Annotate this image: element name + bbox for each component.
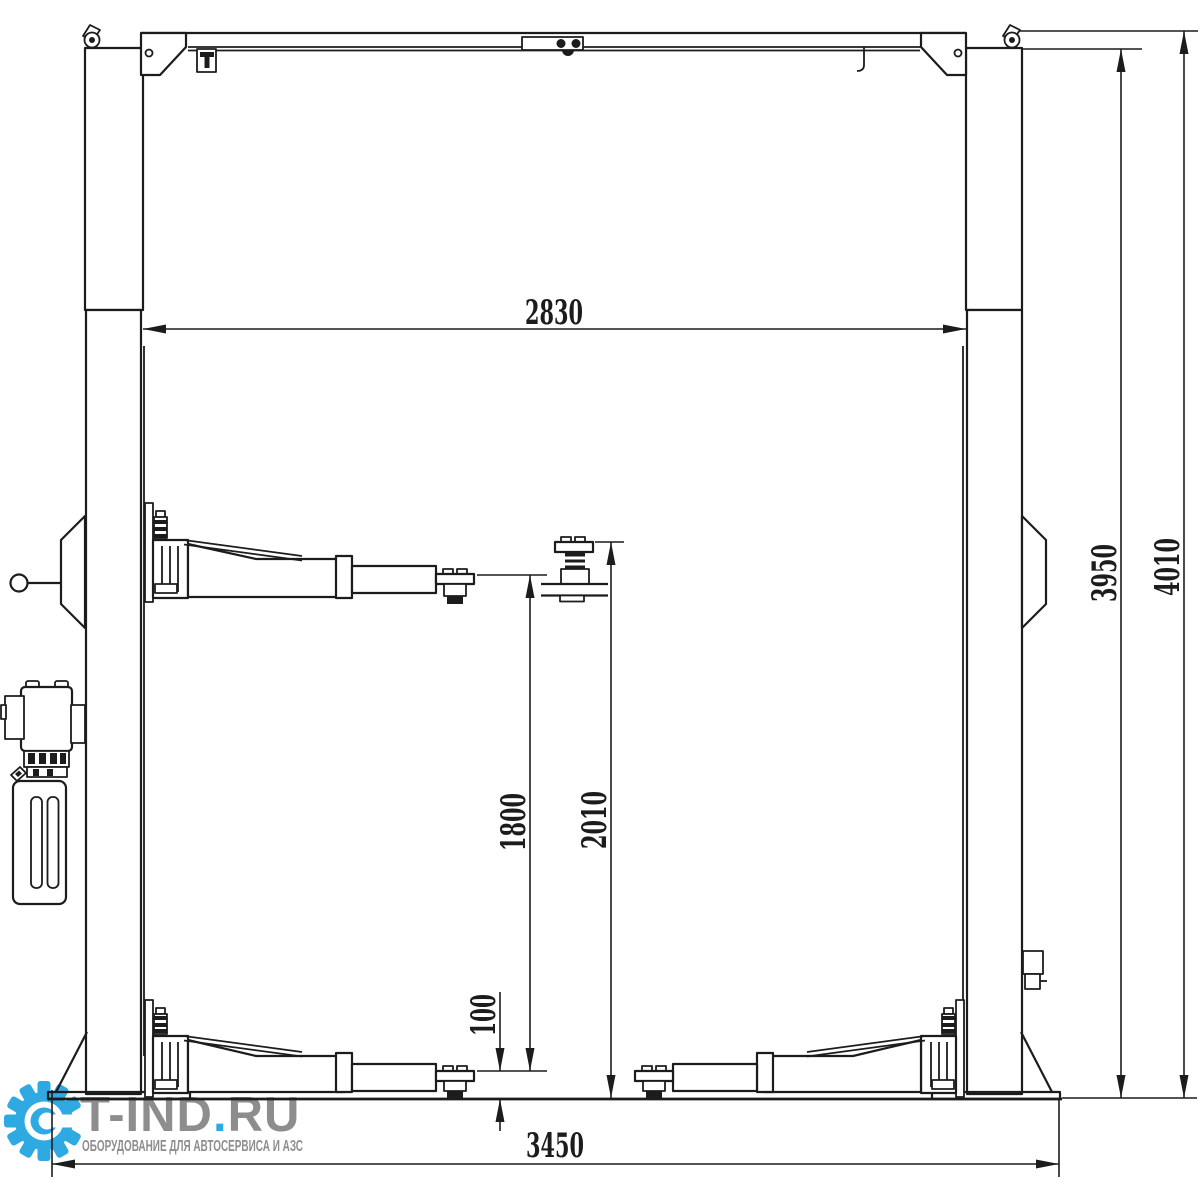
handle-knob <box>11 575 28 592</box>
dim-label-100: 100 <box>464 994 504 1036</box>
left-post-pulley-icon <box>83 25 100 48</box>
lower-left-arm-assembly <box>145 1000 474 1098</box>
dim-label-2010: 2010 <box>575 791 615 849</box>
left-post <box>85 48 144 1094</box>
lift-technical-drawing: T-IND.RU ОБОРУДОВАНИЕ ДЛЯ АВТОСЕРВИСА И … <box>0 0 1200 1202</box>
right-post-junction-box <box>1023 951 1047 989</box>
lift-pad <box>436 569 474 604</box>
dim-label-2830: 2830 <box>525 293 583 333</box>
right-post-bracket <box>1022 516 1046 628</box>
dim-label-3450: 3450 <box>526 1126 584 1166</box>
hydraulic-power-unit <box>1 681 85 904</box>
two-post-lift-drawing-page: T-IND.RU ОБОРУДОВАНИЕ ДЛЯ АВТОСЕРВИСА И … <box>0 0 1200 1202</box>
top-beam <box>141 33 966 75</box>
beam-limit-switch <box>522 37 583 56</box>
upper-left-arm-assembly <box>145 503 474 604</box>
arm-collar <box>336 1053 352 1092</box>
lock-release-handle <box>11 516 86 628</box>
dim-width-between-posts: 2830 <box>143 293 966 334</box>
center-pad-max-height <box>541 537 608 602</box>
dim-label-3950: 3950 <box>1085 544 1125 602</box>
dim-pad-min-height: 100 <box>464 992 547 1131</box>
lift-pad <box>436 1066 474 1098</box>
right-post <box>963 48 1022 1094</box>
arm-collar <box>336 556 352 598</box>
pump-flange <box>24 751 69 777</box>
dim-label-4010: 4010 <box>1148 538 1188 596</box>
carriage-plate <box>145 1000 153 1097</box>
lower-right-arm-assembly <box>635 1000 964 1098</box>
beam-safety-latch <box>197 49 216 72</box>
beam-left-bracket-hole <box>146 50 153 57</box>
right-post-pulley-icon <box>1003 25 1020 48</box>
motor-capacitor <box>5 696 24 739</box>
beam-right-bracket-hole <box>955 50 962 57</box>
arm-extension <box>352 566 436 593</box>
arm-extension <box>352 1064 436 1091</box>
dim-label-1800: 1800 <box>494 793 534 851</box>
pad-screw <box>565 552 585 569</box>
carriage-plate <box>145 503 153 602</box>
brand-tagline: ОБОРУДОВАНИЕ ДЛЯ АВТОСЕРВИСА И АЗС <box>82 1138 303 1155</box>
motor <box>21 687 72 751</box>
motor-mount <box>71 705 85 743</box>
dim-lift-height-extended: 2010 <box>575 542 624 1098</box>
